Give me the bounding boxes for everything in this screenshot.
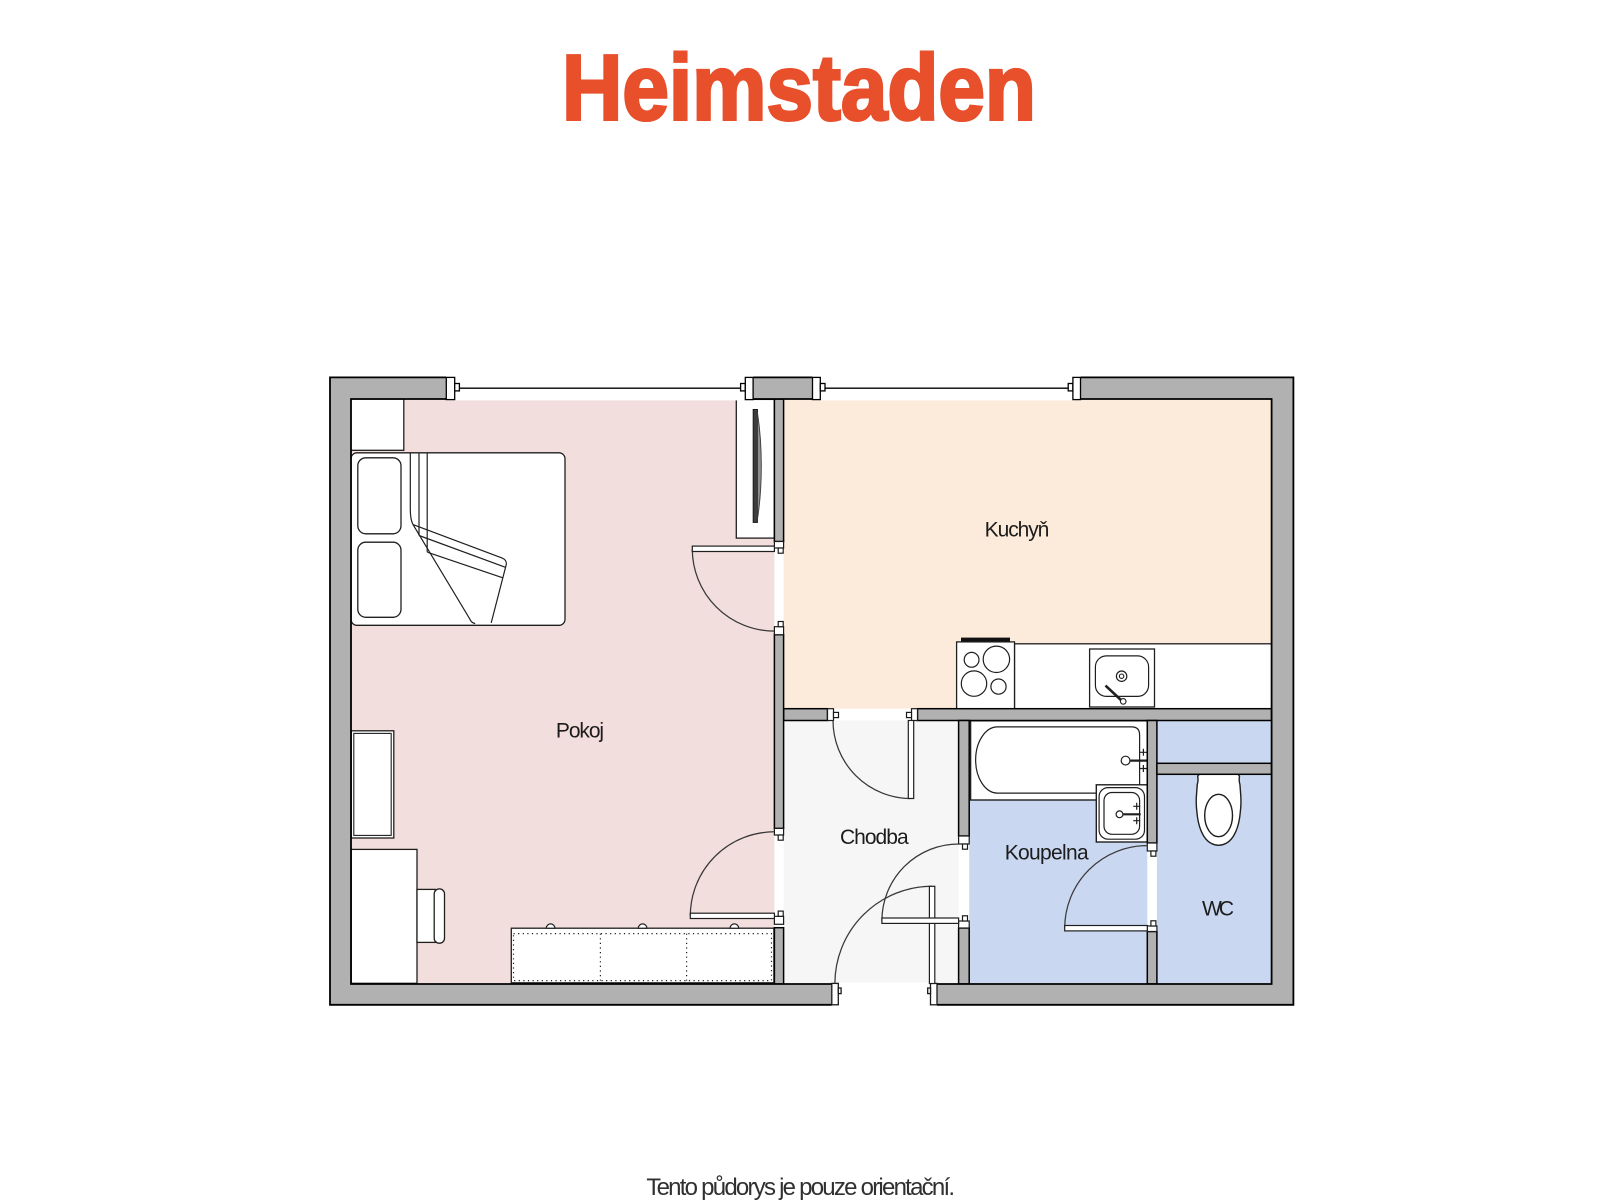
svg-text:Heimstaden: Heimstaden bbox=[562, 35, 1036, 139]
svg-text:Chodba: Chodba bbox=[840, 826, 909, 849]
svg-text:WC: WC bbox=[1202, 897, 1234, 920]
svg-text:Koupelna: Koupelna bbox=[1005, 841, 1089, 864]
svg-text:Pokoj: Pokoj bbox=[556, 720, 604, 743]
svg-text:Tento půdorys je pouze orienta: Tento půdorys je pouze orientační. bbox=[646, 1174, 955, 1200]
svg-text:Kuchyň: Kuchyň bbox=[985, 519, 1050, 542]
